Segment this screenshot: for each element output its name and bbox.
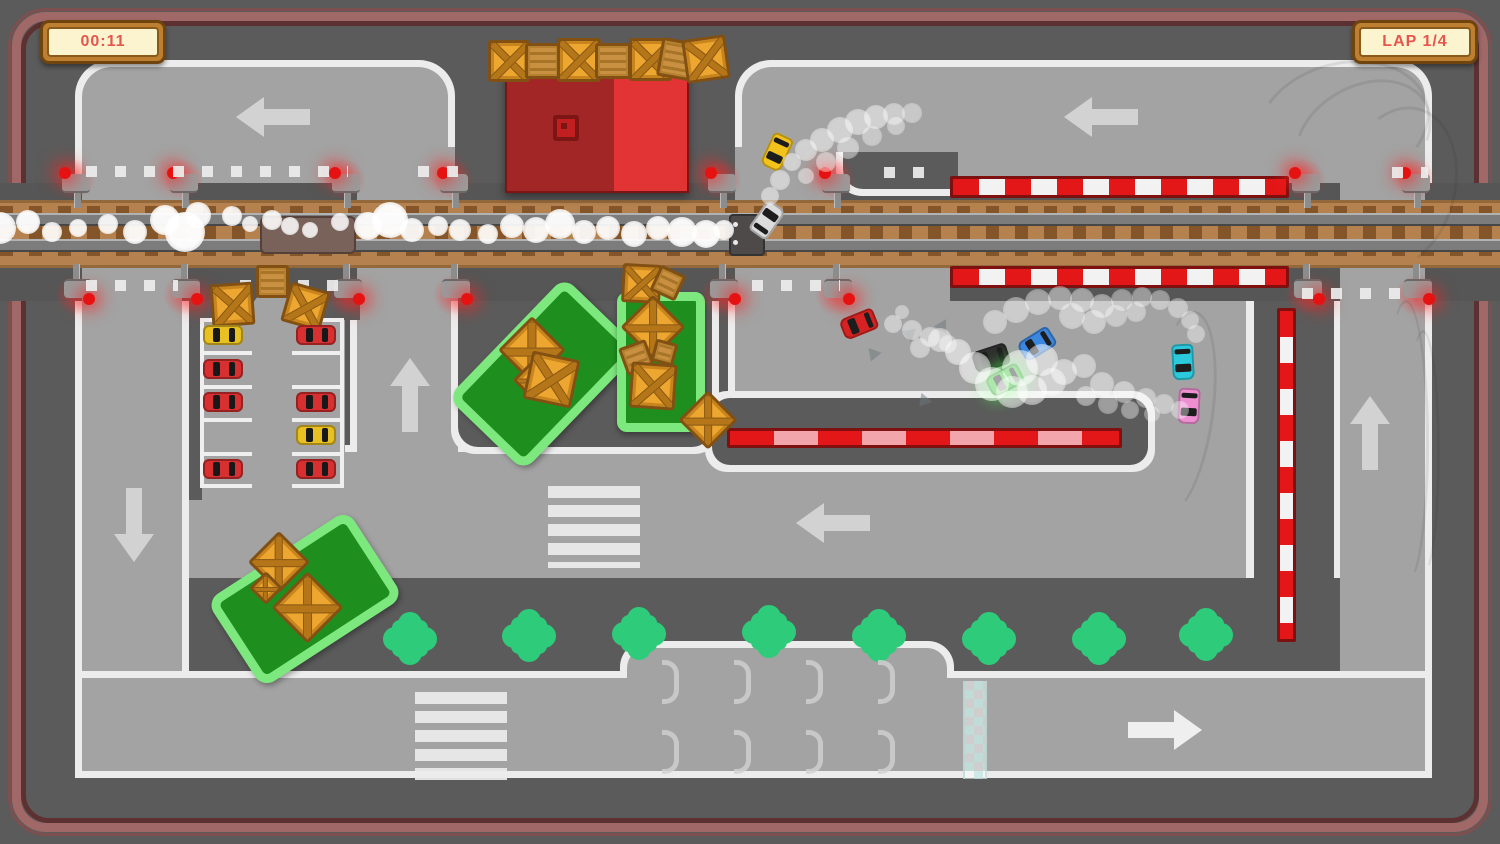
parked-car (203, 459, 243, 479)
smoke-puff (545, 209, 575, 239)
smoke-puff (887, 117, 905, 135)
smoke-puff (262, 210, 282, 230)
direction-arrow (114, 476, 154, 568)
smoke-puff (302, 222, 318, 238)
crossing-post (440, 266, 470, 302)
smoke-puff (1059, 303, 1085, 329)
crossing-dots (86, 280, 178, 291)
direction-arrow (390, 352, 430, 444)
smoke-puff (42, 222, 62, 242)
smoke-puff (0, 212, 16, 244)
smoke-puff (185, 202, 211, 228)
cyan-race-car (1171, 343, 1195, 380)
plank-crate (525, 43, 561, 79)
smoke-puff (910, 338, 930, 358)
pit-slot-marker (806, 660, 823, 704)
x-crate (678, 390, 737, 449)
lap-badge: LAP 1/4 (1352, 20, 1478, 64)
tree (974, 624, 1004, 654)
smoke-puff (500, 214, 524, 238)
crossing-dots (1302, 288, 1418, 299)
smoke-puff (242, 216, 258, 232)
tree (624, 619, 654, 649)
pit-slot-marker (734, 730, 751, 774)
parked-car (296, 425, 336, 445)
parked-car (296, 392, 336, 412)
parked-car (203, 392, 243, 412)
x-crate (628, 361, 677, 410)
smoke-puff (761, 187, 779, 205)
smoke-puff (123, 220, 147, 244)
x-crate (522, 350, 580, 408)
smoke-puff (714, 220, 734, 240)
smoke-puff (798, 168, 814, 184)
smoke-puff (1025, 289, 1051, 315)
crossing-post (708, 266, 738, 302)
direction-arrow (1116, 710, 1208, 750)
timer-value: 00:11 (47, 27, 159, 57)
x-crate (210, 282, 256, 328)
smoke-puff (837, 137, 859, 159)
smoke-puff (1136, 388, 1156, 408)
smoke-puff (596, 216, 620, 240)
smoke-puff (1187, 325, 1205, 343)
pit-slot-marker (878, 730, 895, 774)
smoke-puff (862, 126, 882, 146)
smoke-puff (428, 216, 448, 236)
crossing-dots (752, 280, 840, 291)
direction-arrow (1058, 97, 1150, 137)
drift-particle (914, 393, 932, 411)
parked-car (296, 459, 336, 479)
plank-crate (256, 265, 289, 298)
smoke-puff (572, 220, 596, 244)
smoke-puff (1082, 310, 1106, 334)
x-crate (681, 34, 731, 84)
smoke-puff (902, 320, 922, 340)
tree (754, 617, 784, 647)
smoke-puff (1144, 406, 1160, 422)
parked-car (203, 359, 243, 379)
pit-slot-marker (806, 730, 823, 774)
smoke-puff (98, 214, 118, 234)
direction-arrow (230, 97, 322, 137)
lap-value: LAP 1/4 (1359, 27, 1471, 57)
tree (395, 624, 425, 654)
crossing-dots (86, 166, 348, 177)
smoke-puff (1150, 290, 1170, 310)
smoke-puff (902, 103, 922, 123)
crossing-dots (418, 166, 476, 177)
smoke-puff (1105, 305, 1127, 327)
smoke-puff (16, 210, 40, 234)
tire-skid-mark (1406, 330, 1440, 576)
smoke-puff (816, 152, 836, 172)
direction-arrow (790, 503, 882, 543)
smoke-puff (449, 219, 471, 241)
smoke-puff (928, 328, 952, 352)
smoke-puff (1098, 394, 1118, 414)
tree (514, 621, 544, 651)
tree (1191, 620, 1221, 650)
smoke-puff (621, 221, 647, 247)
smoke-puff (1072, 354, 1096, 378)
smoke-puff (1126, 302, 1146, 322)
plank-crate (595, 43, 631, 79)
scene-effects (0, 0, 1500, 844)
smoke-puff (1121, 401, 1139, 419)
smoke-puff (331, 213, 349, 231)
crossing-post (822, 170, 852, 206)
smoke-puff (895, 305, 909, 319)
pit-slot-marker (734, 660, 751, 704)
parked-car (296, 325, 336, 345)
smoke-puff (222, 206, 242, 226)
tree (1084, 624, 1114, 654)
smoke-puff (281, 217, 299, 235)
pit-slot-marker (878, 660, 895, 704)
game-canvas[interactable]: 00:11 LAP 1/4 (0, 0, 1500, 844)
tree (864, 621, 894, 651)
smoke-puff (1076, 386, 1096, 406)
timer-badge: 00:11 (40, 20, 166, 64)
smoke-puff (478, 224, 498, 244)
crossing-post (708, 170, 738, 206)
smoke-puff (400, 218, 424, 242)
pit-slot-marker (662, 660, 679, 704)
game-screen: { "hud": { "timer": "00:11", "lap": "LAP… (0, 0, 1500, 844)
smoke-puff (69, 219, 87, 237)
x-crate (488, 40, 530, 82)
smoke-puff (1171, 401, 1189, 419)
pit-slot-marker (662, 730, 679, 774)
drift-particle (864, 348, 881, 364)
crossing-dots (884, 167, 940, 178)
parked-car (203, 325, 243, 345)
white-race-car (748, 199, 787, 241)
